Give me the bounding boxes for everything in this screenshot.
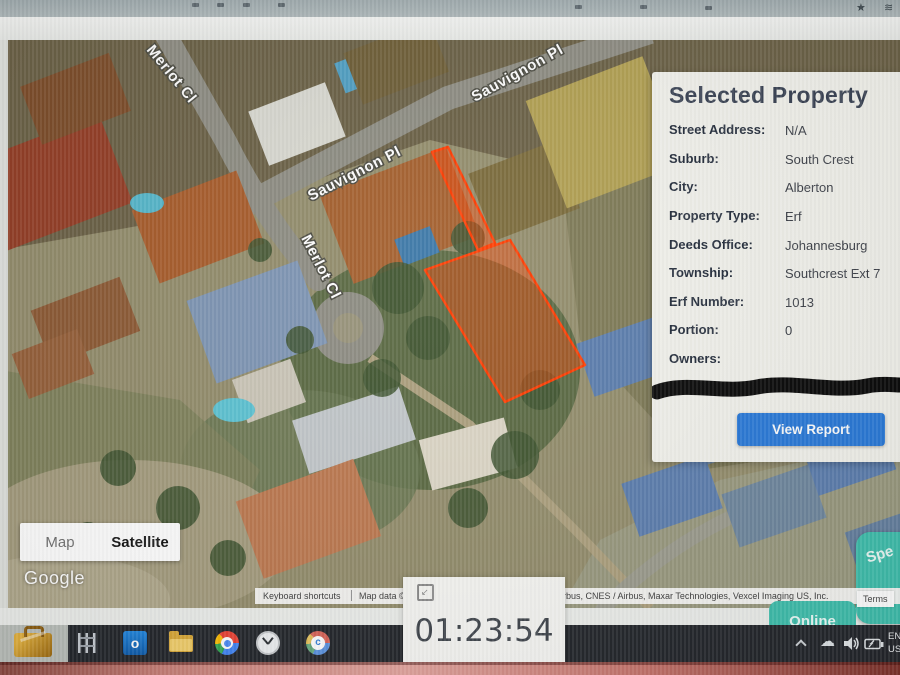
taskbar-icon-app[interactable] — [74, 629, 102, 657]
property-field-row: Street Address: N/A — [652, 122, 900, 146]
onedrive-cloud-icon[interactable]: ☁ — [820, 632, 835, 650]
top-bar-mark — [217, 3, 224, 7]
property-field-row: City: Alberton — [652, 179, 900, 203]
profile-icon[interactable]: ≋ — [884, 0, 893, 16]
map-data-label: Map data © — [359, 591, 406, 601]
satellite-button[interactable]: Satellite — [100, 523, 180, 561]
google-logo[interactable]: Google — [24, 568, 85, 589]
field-label: City: — [669, 179, 698, 194]
top-bar-mark — [575, 5, 582, 9]
keyboard-shortcuts-link[interactable]: Keyboard shortcuts — [263, 591, 341, 601]
property-field-row: Township: Southcrest Ext 7 — [652, 265, 900, 289]
volume-icon[interactable] — [844, 636, 860, 651]
attribution-providers: Airbus, CNES / Airbus, Maxar Technologie… — [555, 591, 828, 601]
battery-icon[interactable] — [864, 638, 885, 650]
field-value: 1013 — [785, 295, 814, 310]
taskbar-icon-file-explorer[interactable] — [167, 629, 195, 657]
page-header-strip — [0, 17, 900, 40]
field-value: Southcrest Ext 7 — [785, 266, 880, 281]
top-bar-mark — [243, 3, 250, 7]
top-bar-mark — [192, 3, 199, 7]
recording-timer-overlay: ↙ 01:23:54 — [403, 577, 565, 662]
timer-time: 01:23:54 — [403, 613, 565, 649]
taskbar-icon-chrome[interactable] — [213, 629, 241, 657]
outlook-icon: o — [123, 631, 147, 655]
field-label: Portion: — [669, 322, 719, 337]
owners-redaction — [652, 372, 900, 406]
property-field-row: Deeds Office: Johannesburg — [652, 237, 900, 261]
field-label: Owners: — [669, 351, 721, 366]
attribution-divider — [351, 590, 352, 601]
timer-resize-icon[interactable]: ↙ — [417, 584, 434, 601]
selected-property-panel: Selected Property Street Address: N/A Su… — [652, 72, 900, 462]
property-field-row: Erf Number: 1013 — [652, 294, 900, 318]
taskbar-icon-chrome-profile[interactable] — [304, 629, 332, 657]
property-field-row: Property Type: Erf — [652, 208, 900, 232]
field-label: Township: — [669, 265, 733, 280]
map-button[interactable]: Map — [20, 523, 100, 561]
property-field-row: Suburb: South Crest — [652, 151, 900, 175]
view-report-button[interactable]: View Report — [737, 413, 885, 446]
field-label: Street Address: — [669, 122, 765, 137]
side-panel-button-label: Spe — [864, 543, 895, 567]
taskbar-light-segment — [0, 625, 68, 662]
field-label: Erf Number: — [669, 294, 744, 309]
language-line2: US — [888, 644, 900, 657]
terms-link[interactable]: Terms — [857, 591, 894, 607]
language-line1: EN — [888, 631, 900, 644]
field-label: Suburb: — [669, 151, 719, 166]
taskbar-icon-clock[interactable] — [254, 629, 282, 657]
top-bar-mark — [640, 5, 647, 9]
screen: ★ ≋ — [0, 0, 900, 675]
photo-bottom-edge — [0, 662, 900, 675]
map-type-control: Map Satellite — [20, 523, 180, 561]
field-value: Alberton — [785, 180, 833, 195]
field-label: Deeds Office: — [669, 237, 753, 252]
field-value: Erf — [785, 209, 802, 224]
bookmark-star-icon[interactable]: ★ — [856, 0, 866, 16]
field-value: 0 — [785, 323, 792, 338]
top-bar-mark — [705, 6, 712, 10]
browser-top-bar: ★ ≋ — [0, 0, 900, 17]
property-field-row: Portion: 0 — [652, 322, 900, 346]
taskbar-icon-outlook[interactable]: o — [121, 629, 149, 657]
side-panel-button[interactable]: Spe — [856, 532, 900, 624]
briefcase-icon[interactable] — [14, 633, 52, 657]
field-value: N/A — [785, 123, 807, 138]
field-value: Johannesburg — [785, 238, 867, 253]
field-value: South Crest — [785, 152, 854, 167]
top-bar-mark — [278, 3, 285, 7]
photo-left-edge — [0, 40, 8, 608]
field-label: Property Type: — [669, 208, 760, 223]
panel-title: Selected Property — [669, 82, 868, 109]
tray-expand-icon[interactable] — [795, 639, 806, 650]
language-indicator[interactable]: EN US — [888, 631, 900, 657]
